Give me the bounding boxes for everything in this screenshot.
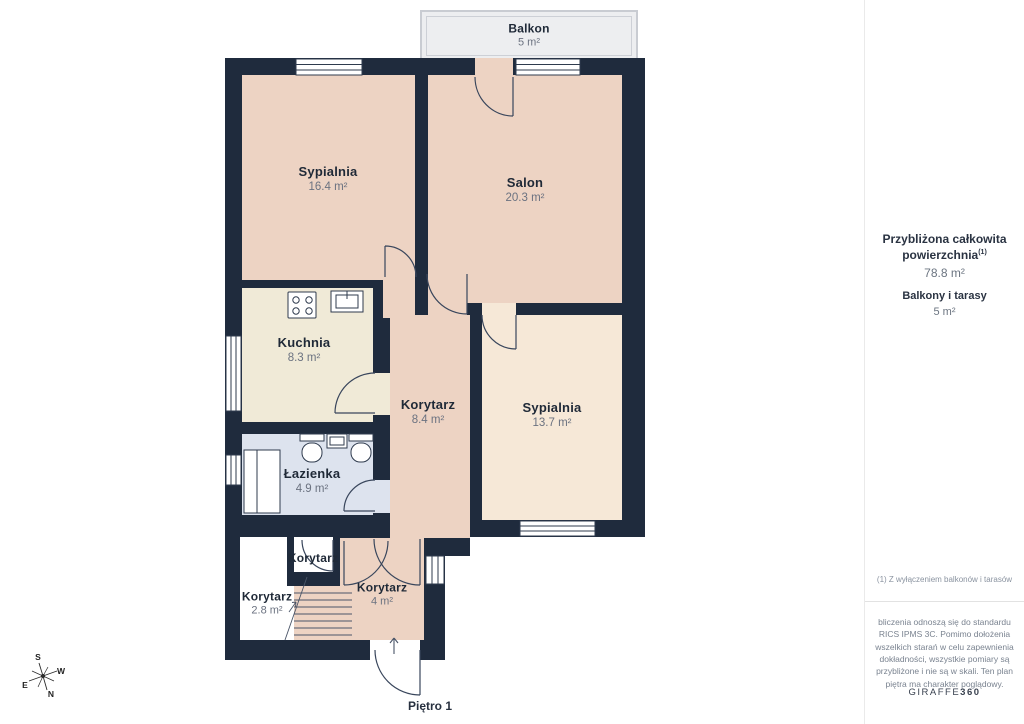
compass-rose-icon: S W E N bbox=[22, 652, 66, 699]
room-name: Kuchnia bbox=[278, 335, 331, 351]
summary-sidebar: Przybliżona całkowita powierzchnia(1) 78… bbox=[864, 0, 1024, 724]
room-label-korytarz-28: Korytarz 2.8 m² bbox=[242, 590, 292, 619]
room-label-sypialnia-2: Sypialnia 13.7 m² bbox=[523, 400, 582, 430]
room-area: 4 m² bbox=[357, 596, 407, 609]
compass-south-label: S bbox=[35, 652, 41, 662]
room-name: Korytarz bbox=[288, 551, 338, 565]
balconies-label: Balkony i tarasy bbox=[865, 290, 1024, 302]
room-area: 5 m² bbox=[508, 37, 549, 50]
footnote-text: (1) Z wyłączeniem balkonów i tarasów bbox=[865, 575, 1024, 584]
room-name: Korytarz bbox=[357, 581, 407, 595]
room-area: 8.4 m² bbox=[401, 413, 455, 427]
total-area-label-text: Przybliżona całkowita powierzchnia bbox=[882, 232, 1006, 262]
room-name: Łazienka bbox=[284, 466, 341, 482]
room-label-salon: Salon 20.3 m² bbox=[506, 175, 545, 205]
room-area: 4.9 m² bbox=[284, 482, 341, 496]
disclaimer-text: bliczenia odnoszą się do standardu RICS … bbox=[865, 616, 1024, 690]
room-name: Balkon bbox=[508, 22, 549, 36]
room-label-lazienka: Łazienka 4.9 m² bbox=[284, 466, 341, 496]
balconies-value: 5 m² bbox=[865, 306, 1024, 318]
room-area: 20.3 m² bbox=[506, 191, 545, 205]
room-name: Sypialnia bbox=[523, 400, 582, 416]
room-name: Sypialnia bbox=[299, 164, 358, 180]
door-gap-salon bbox=[428, 270, 467, 318]
door-gap-korytarz-4 bbox=[340, 538, 424, 556]
compass-east-label: E bbox=[22, 680, 28, 690]
room-name: Salon bbox=[506, 175, 545, 191]
room-korytarz-28 bbox=[240, 537, 287, 640]
room-label-korytarz-4: Korytarz 4 m² bbox=[357, 581, 407, 610]
compass-west-label: W bbox=[57, 666, 66, 676]
total-area-value: 78.8 m² bbox=[865, 266, 1024, 280]
room-area: 8.3 m² bbox=[278, 351, 331, 365]
stairs-area bbox=[294, 586, 340, 640]
room-area: 13.7 m² bbox=[523, 416, 582, 430]
compass-north-label: N bbox=[48, 689, 54, 699]
room-area: 16.4 m² bbox=[299, 180, 358, 194]
brand-name: GIRAFFE bbox=[908, 687, 960, 698]
room-name: Korytarz bbox=[242, 590, 292, 604]
entry-door-gap bbox=[370, 640, 420, 660]
door-gap-sypialnia-1 bbox=[383, 274, 415, 318]
room-label-balkon: Balkon 5 m² bbox=[508, 22, 549, 51]
room-label-sypialnia-1: Sypialnia 16.4 m² bbox=[299, 164, 358, 194]
total-area-footnote-ref: (1) bbox=[978, 249, 987, 256]
floor-label: Piętro 1 bbox=[408, 699, 452, 713]
room-area: 2.8 m² bbox=[242, 605, 292, 618]
floorplan-canvas: Balkon 5 m² bbox=[0, 0, 1024, 724]
sidebar-divider bbox=[865, 601, 1024, 602]
room-name: Korytarz bbox=[401, 397, 455, 413]
door-gap-balcony bbox=[475, 58, 513, 76]
door-gap-kuchnia bbox=[373, 373, 390, 415]
room-label-korytarz-main: Korytarz 8.4 m² bbox=[401, 397, 455, 427]
total-area-label: Przybliżona całkowita powierzchnia(1) bbox=[865, 232, 1024, 263]
door-gap-sypialnia-2 bbox=[482, 303, 516, 315]
room-label-korytarz-small: Korytarz bbox=[288, 551, 338, 565]
door-gap-lazienka bbox=[373, 480, 390, 513]
room-label-kuchnia: Kuchnia 8.3 m² bbox=[278, 335, 331, 365]
brand-logo: GIRAFFE360 bbox=[865, 687, 1024, 698]
brand-suffix: 360 bbox=[960, 687, 980, 698]
